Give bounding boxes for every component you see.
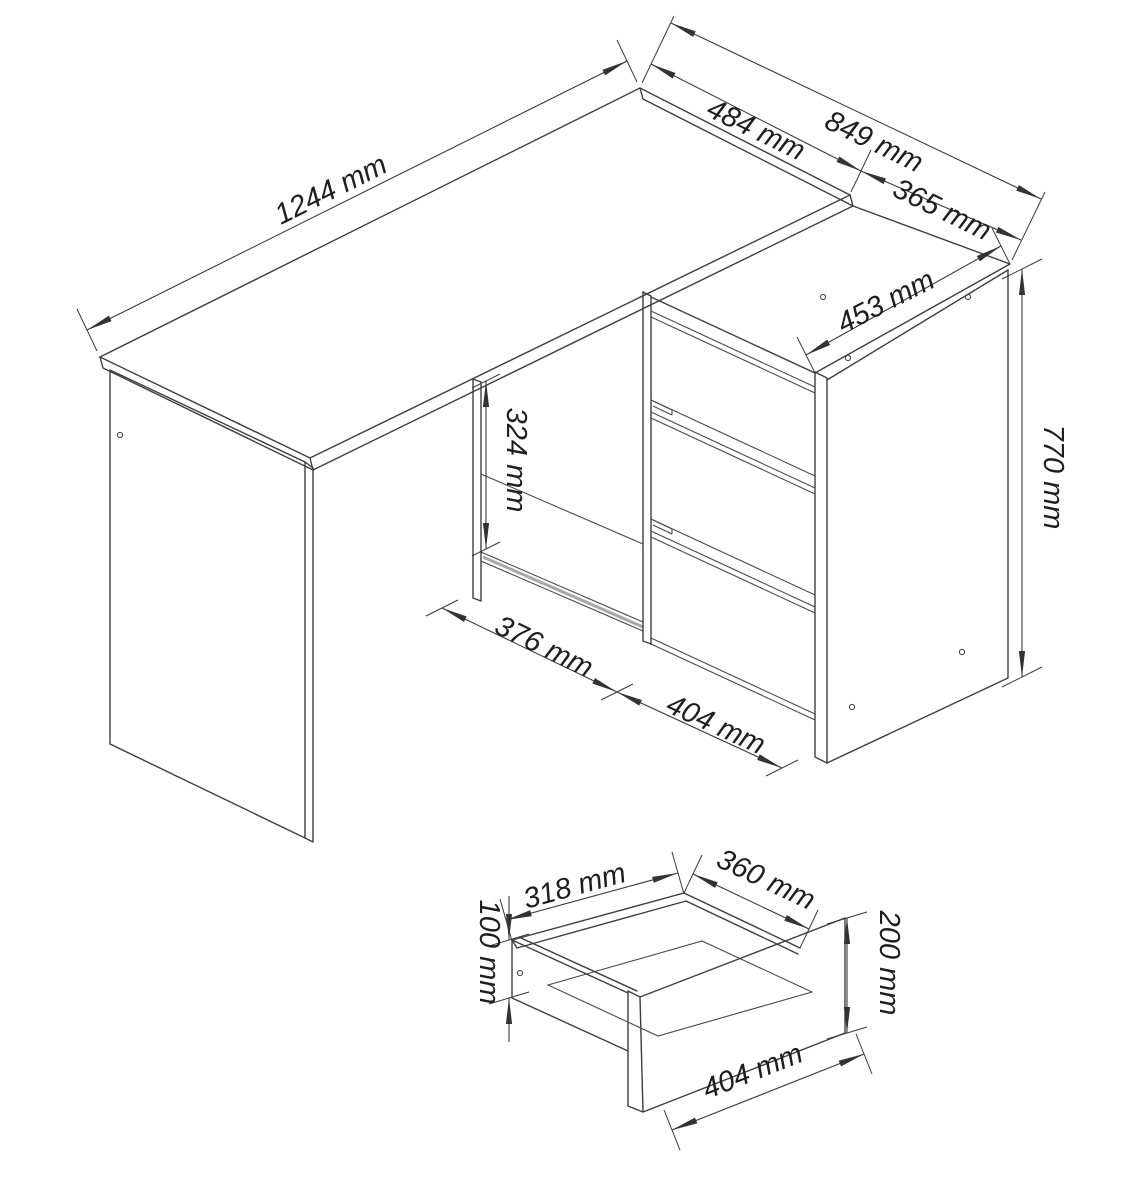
dim-label-200: 200 mm xyxy=(873,910,905,1016)
drawer-fronts xyxy=(651,311,815,720)
left-side-panel xyxy=(110,370,313,842)
dim-label-453: 453 mm xyxy=(832,264,940,340)
dim-label-376: 376 mm xyxy=(490,610,598,685)
drawer-dimension-lines xyxy=(506,873,864,1130)
cabinet-front-left-edge xyxy=(643,292,651,644)
dim-label-404-drawer: 404 mm xyxy=(698,1037,807,1105)
cabinet-front-right-edge xyxy=(815,372,827,763)
dim-label-360: 360 mm xyxy=(712,843,820,917)
dim-label-100: 100 mm xyxy=(473,900,505,1005)
dim-label-318: 318 mm xyxy=(520,857,629,916)
drawer-interior-bottom xyxy=(548,941,812,1036)
dim-label-849: 849 mm xyxy=(820,105,928,180)
compartment-divider-panel xyxy=(473,379,481,601)
drawer-fitting-hole xyxy=(517,970,522,975)
drawer-left-wall xyxy=(512,938,637,1051)
cabinet-side-panel xyxy=(827,270,1008,763)
drawing-canvas: 1244 mm 484 mm 849 mm 365 mm 453 mm 770 … xyxy=(0,0,1131,1200)
drawer-drawing: 318 mm 360 mm 100 mm 200 mm 404 mm xyxy=(473,843,905,1150)
desktop-thickness-edges xyxy=(100,88,853,470)
dim-label-404-desk: 404 mm xyxy=(661,688,770,761)
dim-label-1244: 1244 mm xyxy=(270,149,392,232)
dim-label-365: 365 mm xyxy=(888,173,996,248)
technical-drawing: 1244 mm 484 mm 849 mm 365 mm 453 mm 770 … xyxy=(0,0,1131,1200)
dimension-line-1244 xyxy=(87,61,627,330)
desktop-top-face xyxy=(100,88,850,458)
dim-label-770: 770 mm xyxy=(1037,425,1069,530)
dim-label-324: 324 mm xyxy=(500,408,532,513)
desk-drawing: 1244 mm 484 mm 849 mm 365 mm 453 mm 770 … xyxy=(77,16,1069,842)
